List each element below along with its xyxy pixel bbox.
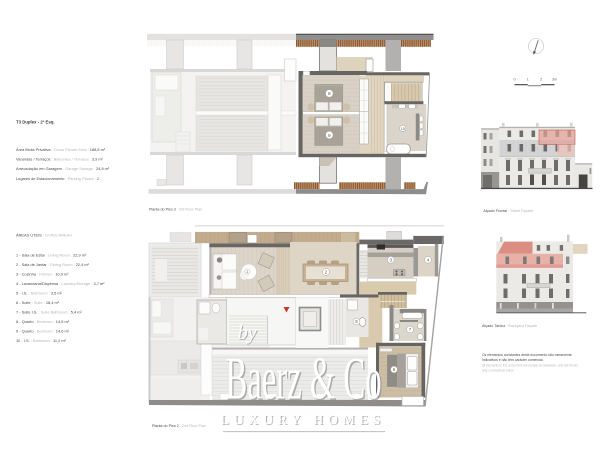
svg-text:Varandas / Terraços : Balconie: Varandas / Terraços : Balconies / Terrac… xyxy=(16,157,104,162)
svg-text:any contractual value: any contractual value xyxy=(482,369,514,373)
svg-text:T3 Duplex - 2º Esq.: T3 Duplex - 2º Esq. xyxy=(16,120,55,125)
svg-text:all elements in this document: all elements in this document are merely… xyxy=(482,363,578,367)
svg-text:Planta do Piso 3 : 3rd Floor P: Planta do Piso 3 : 3rd Floor Plan xyxy=(149,208,202,212)
svg-text:8: 8 xyxy=(328,91,331,97)
svg-text:2: 2 xyxy=(540,78,542,82)
svg-text:by: by xyxy=(238,322,257,344)
svg-text:7 - Suite I.S. : Suite Bathroo: 7 - Suite I.S. : Suite Bathroom : 5,4 m² xyxy=(16,310,82,315)
svg-text:9: 9 xyxy=(328,133,331,139)
svg-text:Baerz & Co: Baerz & Co xyxy=(225,346,381,412)
svg-text:10: 10 xyxy=(400,126,405,131)
svg-text:Alçado Frontal : Street Façade: Alçado Frontal : Street Façade xyxy=(483,209,533,213)
svg-text:4 - Lavandaria/Dispensa : Laun: 4 - Lavandaria/Dispensa : Laundry/Storag… xyxy=(16,281,105,286)
svg-text:Área Bruta Privativa : Gross P: Área Bruta Privativa : Gross Private Are… xyxy=(16,147,106,152)
svg-text:8 - Quarto : Bedroom : 14,5 m²: 8 - Quarto : Bedroom : 14,5 m² xyxy=(16,319,70,324)
svg-text:5 - I.S. : Bathroom : 3,5 m²: 5 - I.S. : Bathroom : 3,5 m² xyxy=(16,291,63,296)
svg-text:ÁREAS ÚTEIS : LIVING AREAS: ÁREAS ÚTEIS : LIVING AREAS xyxy=(16,233,72,238)
svg-text:2 - Sala de Jantar : Dining Ro: 2 - Sala de Jantar : Dining Room : 22,4 … xyxy=(16,262,90,267)
svg-text:Arrecadação em Garagem : Garag: Arrecadação em Garagem : Garage Storage … xyxy=(16,166,110,171)
svg-text:LUXURY HOMES: LUXURY HOMES xyxy=(221,412,385,427)
svg-text:10 - I.S. : Bathroom : 11,2 m²: 10 - I.S. : Bathroom : 11,2 m² xyxy=(16,338,67,343)
svg-text:6 - Suite : Suite : 18,4 m²: 6 - Suite : Suite : 18,4 m² xyxy=(16,300,60,305)
svg-text:Alçado Tardoz : Backyard Façad: Alçado Tardoz : Backyard Façade xyxy=(482,324,537,328)
svg-text:indicativos e não têm carácter: indicativos e não têm carácter comercial… xyxy=(482,358,543,362)
svg-text:Lugares de Estacionamento : Pa: Lugares de Estacionamento : Parking Plac… xyxy=(16,176,99,181)
svg-text:0: 0 xyxy=(513,78,515,82)
svg-text:1 - Sala de Estar : Living Roo: 1 - Sala de Estar : Living Room : 22,9 m… xyxy=(16,253,87,258)
svg-text:3 - Cozinha : Kitchen : 10,0 m: 3 - Cozinha : Kitchen : 10,0 m² xyxy=(16,272,69,277)
svg-text:3m: 3m xyxy=(552,78,557,82)
svg-text:9 - Quarto : Bedroom : 14,6 m²: 9 - Quarto : Bedroom : 14,6 m² xyxy=(16,329,70,334)
svg-text:1: 1 xyxy=(527,78,529,82)
svg-text:Planta do Piso 2 : 2nd Floor P: Planta do Piso 2 : 2nd Floor Plan xyxy=(152,424,206,428)
svg-text:Os elementos constantes deste: Os elementos constantes deste documento … xyxy=(482,353,572,357)
